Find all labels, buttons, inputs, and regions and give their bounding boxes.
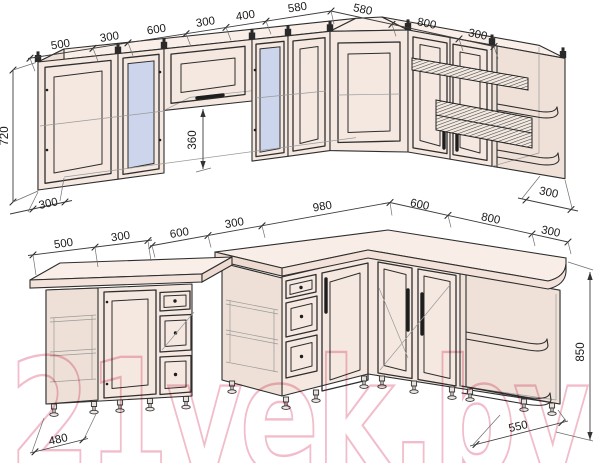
dim-upper-right-depth: 300 (518, 176, 578, 213)
dim-label: 850 (575, 342, 587, 361)
dim-label: 300 (195, 15, 216, 30)
kitchen-technical-drawing: 21vek.by 500 300 600 300 400 580 580 800… (0, 0, 600, 463)
dim-label: 360 (187, 130, 199, 149)
dim-open-height: 360 (187, 109, 211, 172)
upper-module-300-open (492, 45, 565, 179)
dim-label: 600 (169, 226, 190, 241)
dim-label: 800 (480, 211, 501, 227)
upper-module-500 (38, 54, 118, 190)
dim-label: 720 (0, 126, 11, 145)
dim-upper-height: 720 (0, 63, 38, 206)
dim-label: 400 (235, 9, 256, 24)
dim-label: 300 (538, 185, 559, 201)
dim-label: 300 (38, 196, 59, 212)
dim-label: 300 (99, 30, 120, 45)
dim-label: 300 (540, 224, 561, 240)
dim-label: 300 (110, 230, 131, 245)
upper-module-800-racks (408, 30, 492, 166)
dim-label: 580 (352, 2, 373, 18)
dim-label: 600 (146, 23, 167, 38)
dim-label: 600 (409, 197, 430, 213)
upper-module-400 (288, 31, 330, 156)
upper-module-300-glass-2 (252, 36, 288, 161)
dim-label: 500 (53, 237, 74, 252)
watermark-text: 21vek.by (9, 326, 588, 463)
upper-cabinets-drawing (0, 0, 566, 190)
upper-corner-module (330, 30, 408, 152)
watermark: 21vek.by (9, 326, 588, 463)
dim-label: 980 (312, 199, 333, 214)
dim-label: 580 (287, 1, 308, 16)
